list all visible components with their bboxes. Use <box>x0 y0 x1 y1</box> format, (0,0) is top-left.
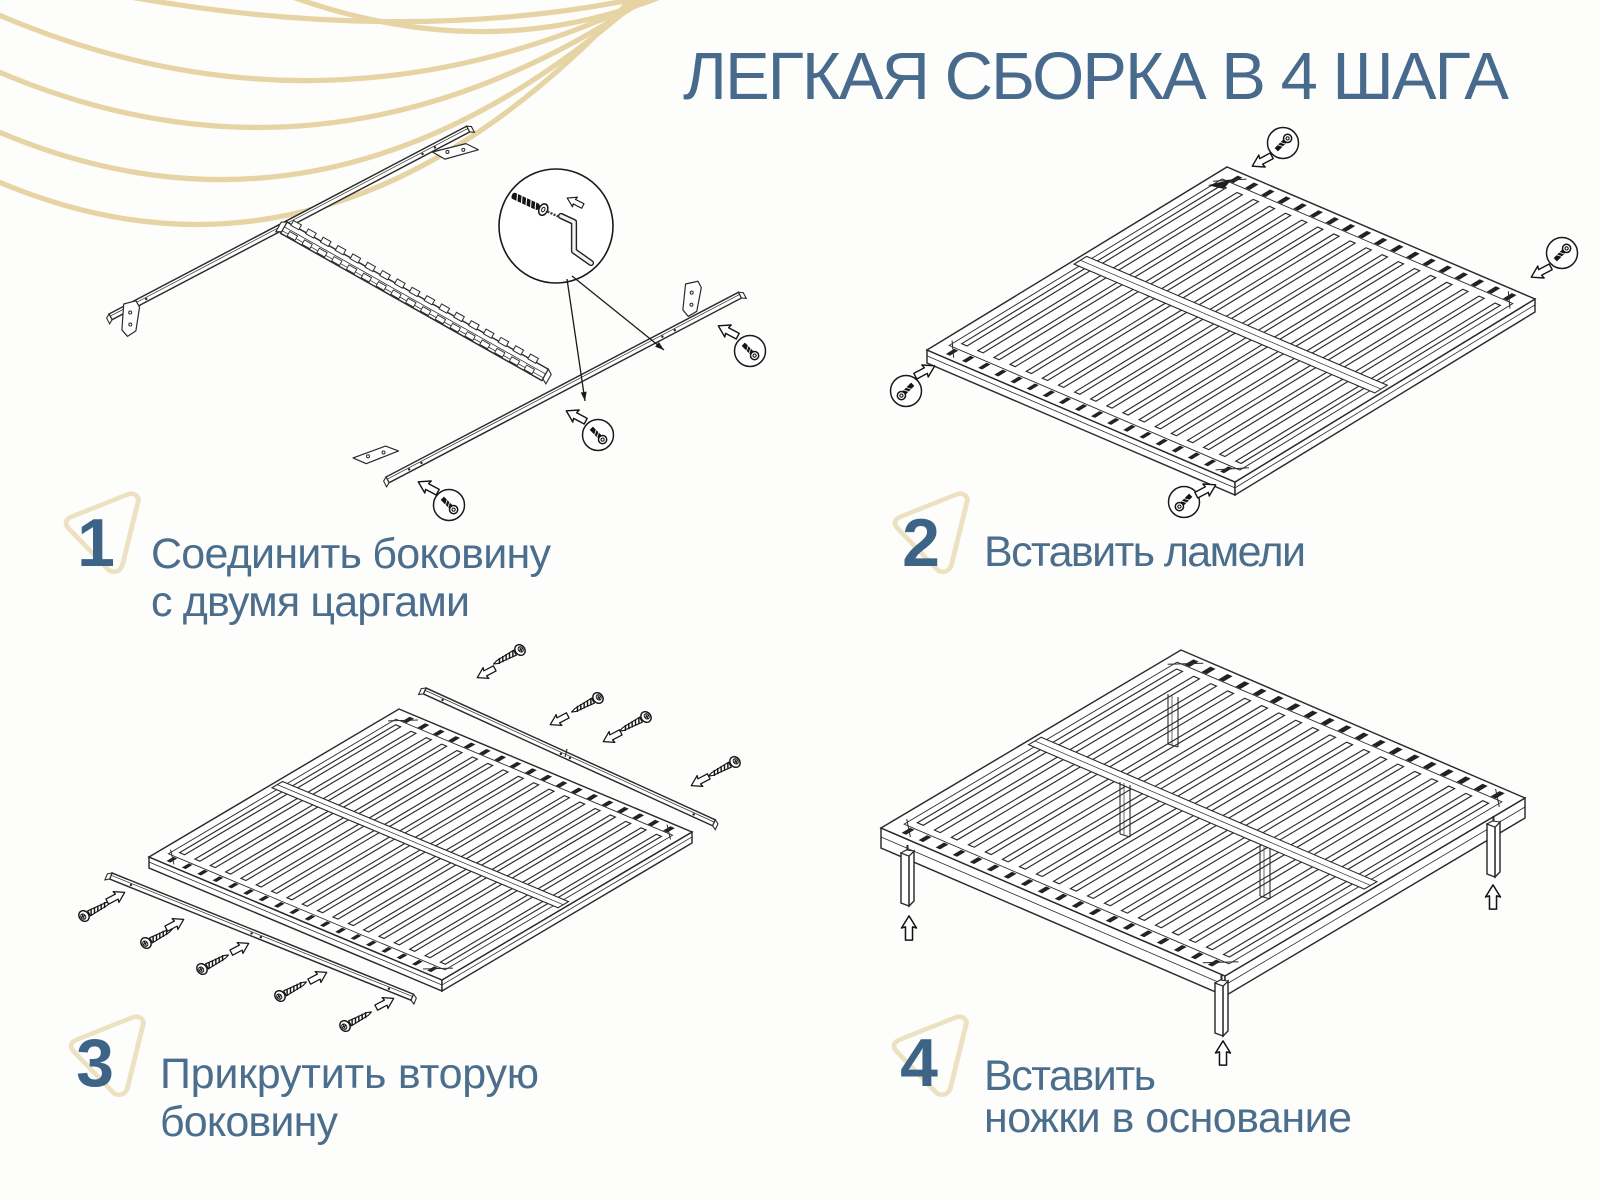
svg-text:ножки в основание: ножки в основание <box>984 1094 1352 1142</box>
svg-text:2: 2 <box>902 505 940 581</box>
svg-text:Вставить ламели: Вставить ламели <box>984 528 1306 576</box>
svg-text:боковину: боковину <box>160 1098 339 1146</box>
svg-text:4: 4 <box>900 1025 938 1101</box>
svg-text:ЛЕГКАЯ СБОРКА В 4 ШАГА: ЛЕГКАЯ СБОРКА В 4 ШАГА <box>683 39 1509 114</box>
svg-text:с двумя царгами: с двумя царгами <box>151 578 470 626</box>
svg-text:Прикрутить вторую: Прикрутить вторую <box>160 1050 539 1098</box>
svg-text:3: 3 <box>76 1025 114 1101</box>
svg-text:1: 1 <box>77 505 115 581</box>
svg-text:Вставить: Вставить <box>984 1052 1156 1100</box>
svg-text:Соединить боковину: Соединить боковину <box>151 530 552 578</box>
